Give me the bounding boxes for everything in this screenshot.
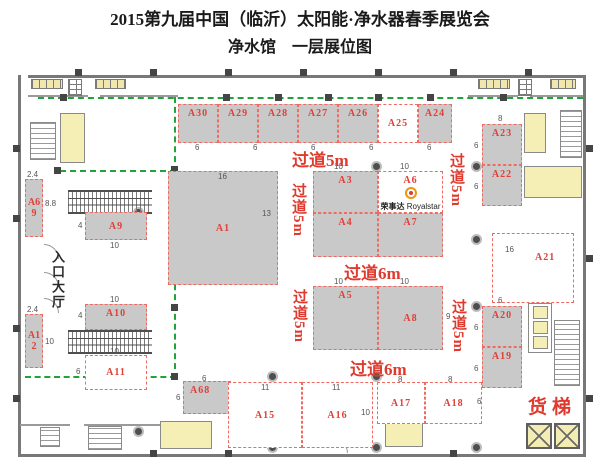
dim-a9-width: 10 [110,242,119,250]
aisle-label-left-center: 过道5m [288,183,309,245]
dim-a10-width: 10 [110,296,119,304]
booth-a16-label: A16 [327,410,347,421]
dim-a15-width: 11 [261,384,269,392]
booth-a25-label: A25 [388,118,408,129]
freight-elevator-shaft [554,423,580,449]
wall-column [375,69,382,76]
wall-column [300,69,307,76]
booth-a17-label: A17 [391,398,411,409]
room [524,166,582,198]
elevator-cell [533,321,548,334]
booth-a24-label: A24 [425,108,445,119]
wall-column [225,69,232,76]
toilet-stalls [478,79,510,89]
toilet-stalls [95,79,126,89]
toilet-stalls [550,79,576,89]
booth-a18: A18 [425,382,482,424]
toilet-stalls [31,79,63,89]
staircase [30,122,56,160]
booth-a5-label: A5 [338,290,352,301]
dim-a12-width: 2.4 [27,306,38,314]
booth-a21 [492,233,574,303]
dim-a12-height: 10 [45,338,54,346]
freight-elevator-shaft [526,423,552,449]
dim-a18-width: 8 [448,376,452,384]
dim-a21-width: 16 [505,246,514,254]
dim-a1-height: 13 [262,210,271,218]
wall-column [13,395,20,402]
entrance-hall-label: 入口大厅 [48,250,67,310]
wall-column [586,255,593,262]
dim-top-row: 6 [253,144,257,152]
aisle-label-top: 过道5m [292,146,349,171]
dim-a9-height: 4 [78,222,82,230]
dim-a18-height: 6 [477,398,481,406]
pillar [269,373,276,380]
royalstar-logo-text: 荣事达 Royalstar [380,201,440,212]
booth-a24: A24 [418,104,452,143]
wall-bottom [18,454,586,457]
route-node [60,94,67,101]
dim-a19-height: 6 [474,365,478,373]
booth-a12-label: A12 [26,330,42,352]
dim-a8-width: 10 [400,278,409,286]
booth-a27: A27 [298,104,338,143]
pillar [473,236,480,243]
route-node [171,373,178,380]
booth-a68-label: A68 [190,385,210,396]
booth-a9-label: A9 [109,221,123,232]
dim-a68-width: 6 [202,375,206,383]
booth-a22: A22 [482,165,522,206]
staircase [40,427,60,447]
booth-a17: A17 [377,382,425,424]
floor-plan-page: 2015第九届中国（临沂）太阳能·净水器春季展览会 净水馆 一层展位图 [0,0,600,476]
booth-a21-label: A21 [535,252,555,263]
green-route-entrance [60,170,176,172]
dim-a23-height: 6 [474,142,478,150]
wall-column [450,69,457,76]
booth-a19: A19 [482,347,522,388]
staircase [554,320,580,386]
booth-a29: A29 [218,104,258,143]
booth-a69-label: A69 [26,197,42,219]
booth-a6-label: A6 [403,175,417,186]
pillar [473,303,480,310]
booth-a30: A30 [178,104,218,143]
sink-block [68,79,82,96]
dim-top-row: 6 [195,144,199,152]
dim-a5-width: 10 [334,278,343,286]
booth-a26-label: A26 [348,108,368,119]
royalstar-en: Royalstar [407,202,441,211]
dim-a1-width: 16 [218,173,227,181]
dim-top-row: 6 [427,144,431,152]
page-subtitle: 净水馆 一层展位图 [0,33,600,57]
booth-a11-label: A11 [106,367,126,378]
route-node [500,94,507,101]
page-title: 2015第九届中国（临沂）太阳能·净水器春季展览会 [0,5,600,30]
dim-a16-width: 11 [332,384,340,392]
dim-a6-width: 10 [400,163,409,171]
royalstar-zh: 荣事达 [380,202,404,211]
wall-column [13,215,20,222]
route-node [54,167,61,174]
elevator-cell [533,336,548,349]
dim-a20-width: 6 [498,297,502,305]
room [160,421,212,449]
pillar [373,163,380,170]
booth-a4-label: A4 [338,217,352,228]
wall-column [525,69,532,76]
staircase [88,426,122,450]
booth-a1: A1 [168,171,278,285]
wall-column [13,145,20,152]
booth-a12: A12 [25,314,43,368]
booth-a28-label: A28 [268,108,288,119]
booth-a22-label: A22 [492,169,512,180]
booth-a1-label: A1 [216,223,230,234]
aisle-label-left-lower: 过道5m [289,289,310,351]
aisle-label-right-center: 过道5m [446,153,467,219]
booth-a7-label: A7 [403,217,417,228]
room [60,113,85,163]
dim-top-row: 6 [369,144,373,152]
route-node [275,94,282,101]
booth-a9: A9 [85,212,147,240]
dim-a11-height: 6 [76,368,80,376]
dim-a16-height: 10 [361,409,370,417]
booth-a29-label: A29 [228,108,248,119]
sink-block [518,79,532,96]
wall-inner [20,424,70,426]
route-node [223,94,230,101]
booth-a7: A7 [378,213,443,257]
aisle-label-center-lower: 过道6m [350,355,407,380]
royalstar-dot-icon [409,191,413,195]
booth-a20-label: A20 [492,310,512,321]
royalstar-logo: 荣事达 Royalstar [378,187,443,212]
dim-a10-height: 4 [78,312,82,320]
booth-a10-label: A10 [106,308,126,319]
route-node [427,94,434,101]
booth-a15-label: A15 [255,410,275,421]
pillar [473,444,480,451]
wall-column [586,395,593,402]
wall-column [225,450,232,457]
elevator-cell [533,306,548,319]
dim-a11-width: 10 [110,348,119,356]
wall-column [150,69,157,76]
dim-a23-width: 8 [498,115,502,123]
dim-a68-height: 6 [176,394,180,402]
booth-a20: A20 [482,306,522,347]
escalator [68,190,152,214]
booth-a30-label: A30 [188,108,208,119]
wall-column [75,69,82,76]
aisle-label-center-upper: 过道6m [344,259,401,284]
dim-a20-height: 6 [474,324,478,332]
wall-column [13,325,20,332]
booth-a11: A11 [85,355,147,390]
pillar [135,428,142,435]
booth-a19-label: A19 [492,351,512,362]
room [385,421,423,447]
booth-a26: A26 [338,104,378,143]
pillar [373,444,380,451]
aisle-label-right-lower: 过道5m [448,299,469,367]
route-node [375,94,382,101]
booth-a5: A5 [313,286,378,350]
booth-a69: A69 [25,179,43,237]
booth-a25: A25 [378,104,418,143]
room [524,113,546,153]
wall-column [150,450,157,457]
dim-a22-height: 6 [474,183,478,191]
staircase [560,110,582,158]
freight-elevator-label: 货梯 [528,392,576,419]
royalstar-ring-icon [405,187,417,199]
booth-a10: A10 [85,304,147,330]
booth-a28: A28 [258,104,298,143]
dim-a69-height: 8.8 [45,200,56,208]
booth-a23-label: A23 [492,128,512,139]
booth-a27-label: A27 [308,108,328,119]
wall-column [586,145,593,152]
booth-a18-label: A18 [443,398,463,409]
pillar [473,163,480,170]
dim-a69-width: 2.4 [27,171,38,179]
booth-a8: A8 [378,286,443,350]
route-node [171,304,178,311]
booth-a8-label: A8 [403,313,417,324]
booth-a3: A3 [313,171,378,213]
booth-a3-label: A3 [338,175,352,186]
route-node [325,94,332,101]
booth-a4: A4 [313,213,378,257]
booth-a23: A23 [482,124,522,165]
booth-a68: A68 [183,381,231,414]
wall-column [450,450,457,457]
